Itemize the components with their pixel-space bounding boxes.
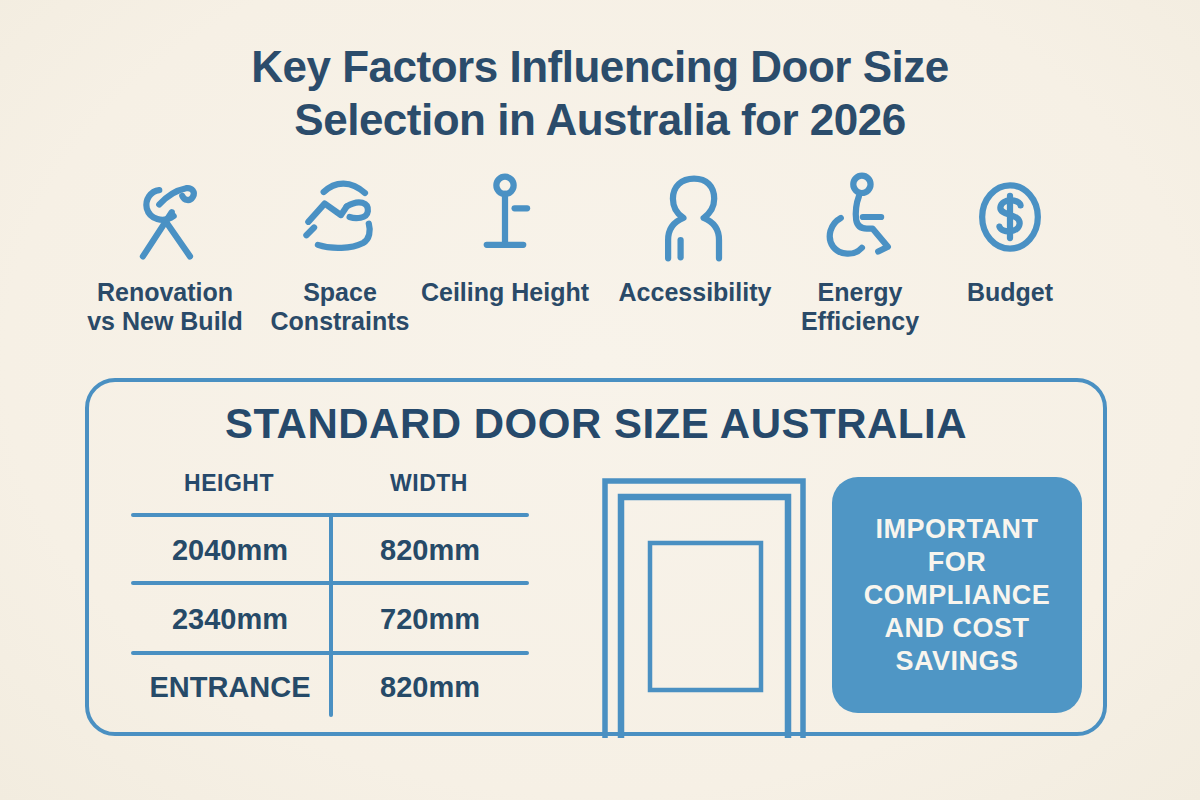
person-icon	[610, 166, 780, 268]
infographic-canvas: Key Factors Influencing Door Size Select…	[0, 0, 1200, 800]
door-panel	[650, 543, 761, 690]
table-cell-width-3: 820mm	[331, 671, 529, 704]
page-title-line1: Key Factors Influencing Door Size	[0, 40, 1200, 93]
factor-space-constraints: Space Constraints	[255, 166, 425, 336]
door-illustration	[602, 477, 807, 738]
table-cell-width-1: 820mm	[331, 534, 529, 567]
dollar-icon	[925, 166, 1095, 268]
factor-ceiling-height-label: Ceiling Height	[420, 278, 590, 307]
table-header-width: WIDTH	[329, 470, 529, 497]
factor-energy-efficiency-label: Energy Efficiency	[775, 278, 945, 336]
table-header-height: HEIGHT	[129, 470, 329, 497]
ceiling-height-icon	[420, 166, 590, 268]
factor-space-constraints-label: Space Constraints	[255, 278, 425, 336]
factor-renovation-label: Renovation vs New Build	[80, 278, 250, 336]
door-outer-frame	[605, 481, 803, 738]
callout-line: COMPLIANCE	[832, 579, 1082, 612]
page-title: Key Factors Influencing Door Size Select…	[0, 40, 1200, 146]
factor-budget-label: Budget	[925, 278, 1095, 307]
callout-line: SAVINGS	[832, 645, 1082, 678]
room-space-icon	[255, 166, 425, 268]
factor-accessibility-label: Accessibility	[610, 278, 780, 307]
table-cell-height-1: 2040mm	[131, 534, 329, 567]
page-title-line2: Selection in Australia for 2026	[0, 93, 1200, 146]
callout-line: IMPORTANT	[832, 513, 1082, 546]
panel-title: STANDARD DOOR SIZE AUSTRALIA	[89, 400, 1103, 448]
table-cell-height-2: 2340mm	[131, 603, 329, 636]
factor-ceiling-height: Ceiling Height	[420, 166, 590, 307]
factor-budget: Budget	[925, 166, 1095, 307]
table-cell-height-3: ENTRANCE	[131, 671, 329, 704]
table-cell-width-2: 720mm	[331, 603, 529, 636]
compliance-callout: IMPORTANT FOR COMPLIANCE AND COST SAVING…	[832, 477, 1082, 713]
wheelchair-icon	[775, 166, 945, 268]
factor-energy-efficiency: Energy Efficiency	[775, 166, 945, 336]
factor-accessibility: Accessibility	[610, 166, 780, 307]
wrench-hammer-icon	[80, 166, 250, 268]
callout-line: FOR	[832, 546, 1082, 579]
callout-line: AND COST	[832, 612, 1082, 645]
factor-renovation: Renovation vs New Build	[80, 166, 250, 336]
standard-size-panel: STANDARD DOOR SIZE AUSTRALIA HEIGHT WIDT…	[85, 378, 1107, 736]
